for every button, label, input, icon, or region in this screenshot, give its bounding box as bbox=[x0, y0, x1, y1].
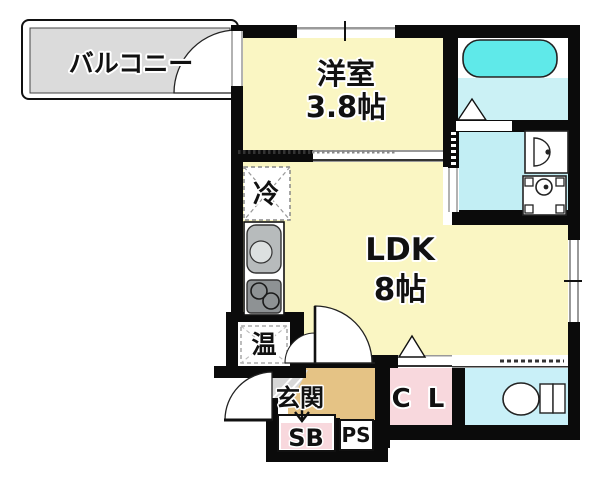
closet-label: C L bbox=[392, 384, 449, 414]
ldk-size: 8帖 bbox=[374, 272, 427, 308]
western-room-size: 3.8帖 bbox=[306, 90, 386, 124]
ldk-label: LDK bbox=[365, 232, 435, 268]
toilet-icon bbox=[503, 383, 565, 415]
shoe-box-label: SB bbox=[288, 424, 324, 452]
stove-icon bbox=[247, 280, 281, 313]
kitchen-counter bbox=[244, 222, 284, 315]
pipe-space-label: PS bbox=[341, 423, 370, 447]
entrance-label: 玄関 bbox=[276, 384, 324, 412]
water-heater-label: 温 bbox=[251, 330, 276, 359]
refrigerator-label: 冷 bbox=[253, 179, 279, 210]
washing-machine-icon bbox=[523, 176, 566, 215]
floor-plan: バルコニー 洋室 3.8帖 LDK 8帖 冷 温 玄関 C L SB PS bbox=[0, 0, 600, 477]
balcony-label: バルコニー bbox=[69, 49, 194, 78]
balcony-doorway bbox=[231, 31, 243, 86]
western-room-label: 洋室 bbox=[317, 57, 375, 91]
window-tick bbox=[344, 21, 346, 41]
window-tick bbox=[564, 280, 582, 282]
bath-doorway bbox=[456, 121, 512, 131]
washbasin-icon bbox=[525, 131, 568, 173]
bathtub-icon bbox=[463, 40, 557, 77]
